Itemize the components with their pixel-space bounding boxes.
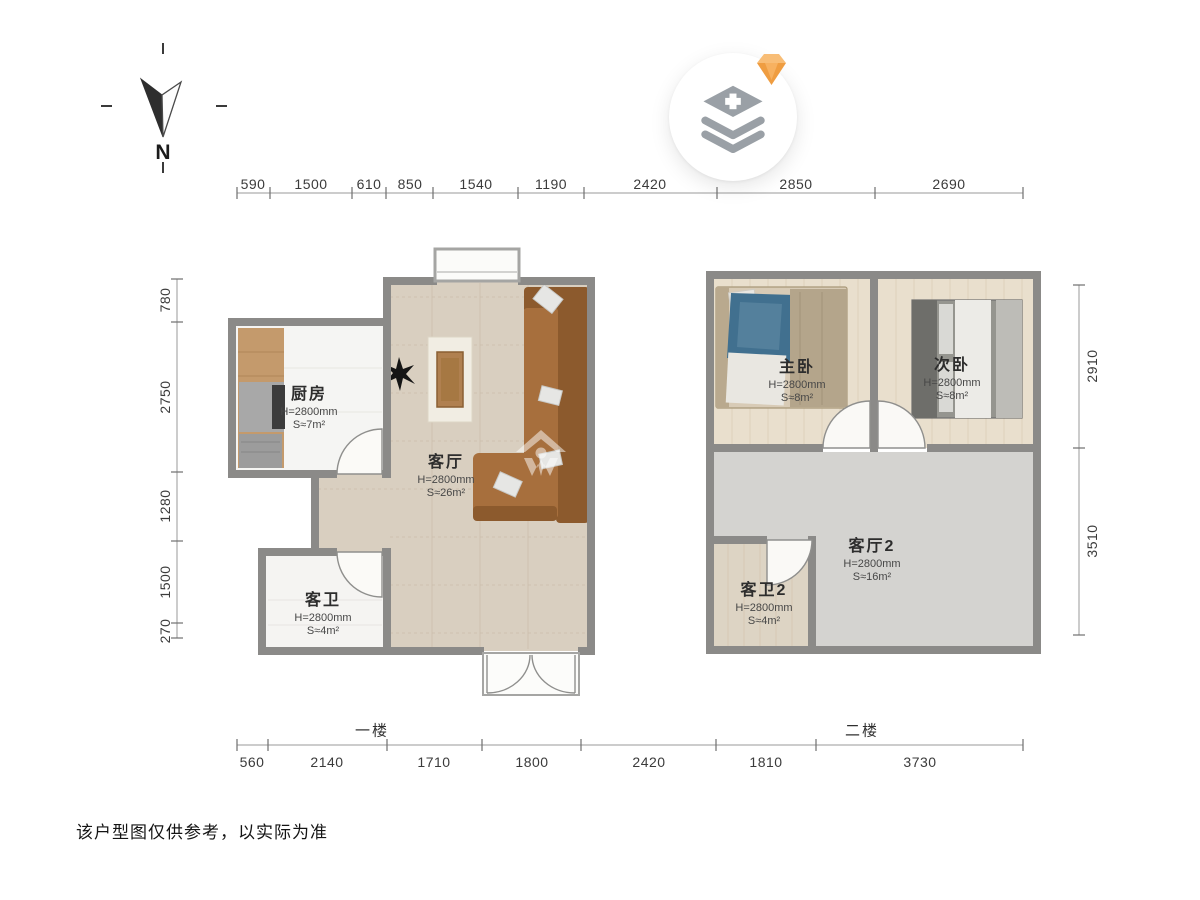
floor-tag-first: 一楼: [355, 720, 389, 741]
dim-top-2: 610: [357, 176, 382, 192]
dim-top-6: 2420: [633, 176, 666, 192]
north-label: N: [155, 141, 170, 164]
room-name-living2: 客厅2: [843, 532, 900, 556]
room-area-master: S≈8m²: [768, 392, 825, 405]
room-label-bath1: 客卫 H=2800mm S≈4m²: [294, 586, 351, 638]
dim-bottom-3: 1800: [515, 754, 548, 770]
north-arrow-dark-half: [141, 79, 163, 137]
bay-window: [435, 249, 519, 281]
room-area-bath2: S≈4m²: [735, 615, 792, 628]
room-name-living: 客厅: [417, 448, 474, 472]
dim-left-3: 1500: [157, 565, 173, 598]
room-height-bath1: H=2800mm: [294, 612, 351, 625]
dim-top-8: 2690: [932, 176, 965, 192]
room-height-living: H=2800mm: [417, 474, 474, 487]
dim-right-0: 2910: [1084, 349, 1100, 382]
dim-top-1: 1500: [294, 176, 327, 192]
room-label-bath2: 客卫2 H=2800mm S≈4m²: [735, 576, 792, 628]
dim-bottom-0: 560: [240, 754, 265, 770]
sink-icon: [239, 434, 282, 468]
room-height-bath2: H=2800mm: [735, 602, 792, 615]
dim-left-2: 1280: [157, 489, 173, 522]
room-label-kitchen: 厨房 H=2800mm S≈7m²: [280, 380, 337, 432]
dim-right-1: 3510: [1084, 524, 1100, 557]
layers-icon: [700, 81, 766, 153]
room-area-second: S≈8m²: [923, 390, 980, 403]
floorplan-canvas: N: [0, 0, 1200, 900]
room-label-living: 客厅 H=2800mm S≈26m²: [417, 448, 474, 500]
dim-top-0: 590: [241, 176, 266, 192]
room-name-bath2: 客卫2: [735, 576, 792, 600]
room-area-living2: S≈16m²: [843, 571, 900, 584]
room-name-bath1: 客卫: [294, 586, 351, 610]
dim-bottom-4: 2420: [632, 754, 665, 770]
hall-floor: [315, 474, 389, 552]
kitchen-counter: [238, 328, 285, 468]
dim-left-4: 270: [157, 619, 173, 644]
dim-left-1: 2750: [157, 380, 173, 413]
dim-left-0: 780: [157, 288, 173, 313]
north-compass: N: [90, 35, 235, 180]
dim-top-4: 1540: [459, 176, 492, 192]
dim-bottom-1: 2140: [310, 754, 343, 770]
vip-layers-badge[interactable]: [669, 53, 797, 181]
disclaimer-text: 该户型图仅供参考，以实际为准: [76, 818, 328, 843]
gem-icon: [754, 51, 789, 88]
dim-top-7: 2850: [779, 176, 812, 192]
room-area-living: S≈26m²: [417, 487, 474, 500]
room-area-bath1: S≈4m²: [294, 625, 351, 638]
north-arrow-light-half: [162, 82, 181, 137]
dim-bottom-6: 3730: [903, 754, 936, 770]
room-name-kitchen: 厨房: [280, 380, 337, 404]
room-label-master: 主卧 H=2800mm S≈8m²: [768, 353, 825, 405]
dim-bottom-5: 1810: [749, 754, 782, 770]
floor-tag-second: 二楼: [845, 720, 879, 741]
room-height-master: H=2800mm: [768, 379, 825, 392]
room-label-second: 次卧 H=2800mm S≈8m²: [923, 351, 980, 403]
room-name-master: 主卧: [768, 353, 825, 377]
room-height-kitchen: H=2800mm: [280, 406, 337, 419]
dim-bottom-2: 1710: [417, 754, 450, 770]
room-height-second: H=2800mm: [923, 377, 980, 390]
room-area-kitchen: S≈7m²: [280, 419, 337, 432]
room-height-living2: H=2800mm: [843, 558, 900, 571]
dim-top-5: 1190: [535, 176, 567, 192]
entry-door: [483, 653, 579, 695]
dim-top-3: 850: [398, 176, 423, 192]
room-label-living2: 客厅2 H=2800mm S≈16m²: [843, 532, 900, 584]
coffee-table: [428, 337, 472, 422]
room-name-second: 次卧: [923, 351, 980, 375]
